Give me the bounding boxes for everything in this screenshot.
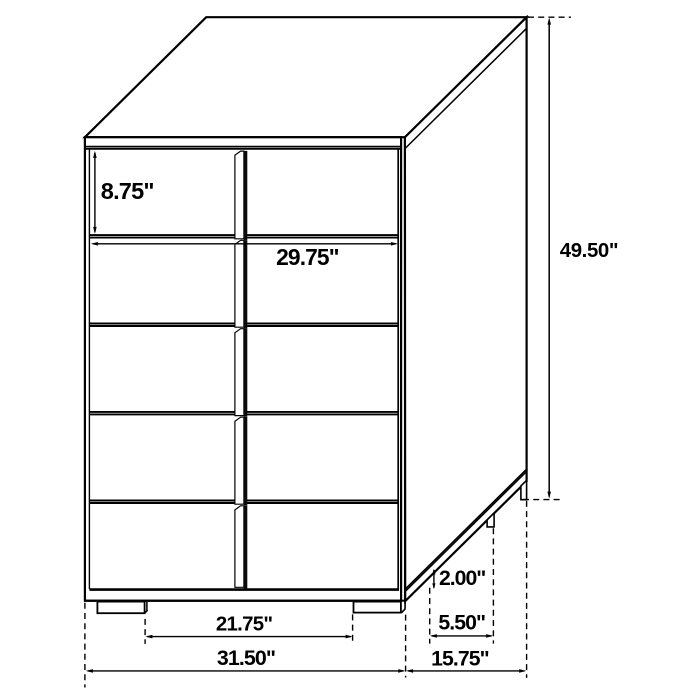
svg-text:29.75": 29.75" xyxy=(276,244,339,270)
svg-text:2.00": 2.00" xyxy=(439,567,485,590)
svg-text:49.50": 49.50" xyxy=(560,240,618,262)
svg-text:31.50": 31.50" xyxy=(217,646,275,670)
svg-text:15.75": 15.75" xyxy=(431,648,489,671)
svg-text:21.75": 21.75" xyxy=(216,613,273,635)
svg-text:8.75": 8.75" xyxy=(101,178,154,204)
svg-text:5.50": 5.50" xyxy=(438,612,485,635)
